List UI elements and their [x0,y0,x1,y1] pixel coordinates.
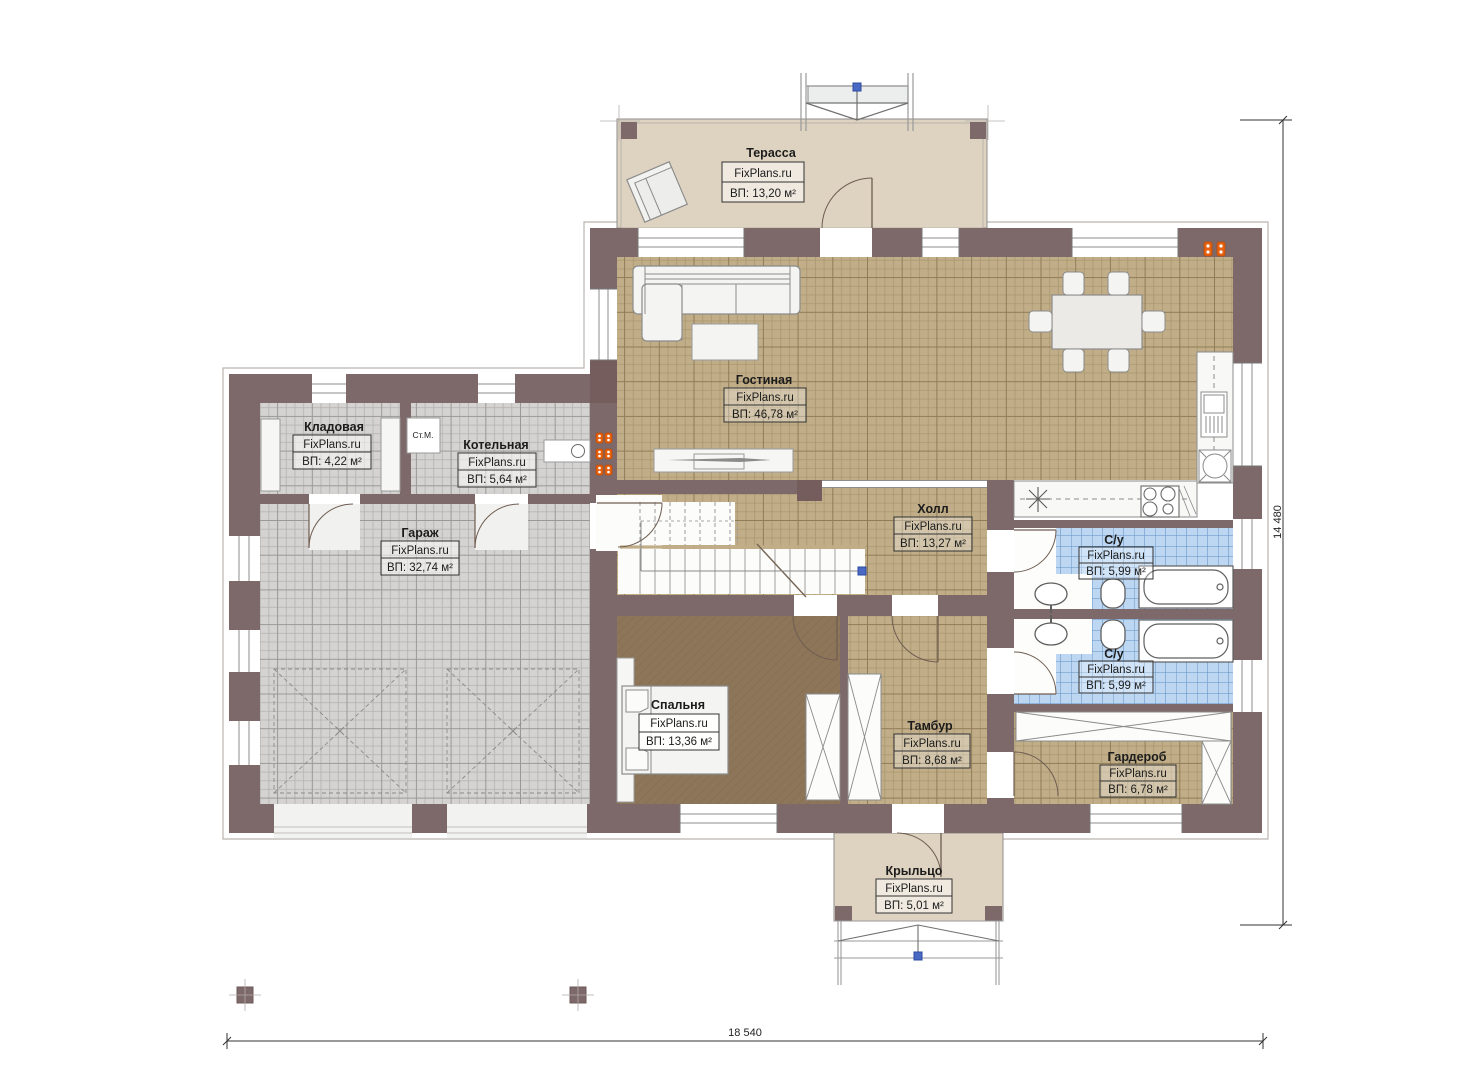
svg-text:FixPlans.ru: FixPlans.ru [303,439,361,451]
svg-text:Холл: Холл [917,502,948,516]
svg-text:ВП: 13,36 м²: ВП: 13,36 м² [646,736,712,748]
svg-text:FixPlans.ru: FixPlans.ru [468,457,526,469]
svg-text:Гостиная: Гостиная [736,373,793,387]
svg-text:ВП: 5,99 м²: ВП: 5,99 м² [1086,566,1146,578]
svg-text:FixPlans.ru: FixPlans.ru [650,718,708,730]
svg-text:ВП: 13,20 м²: ВП: 13,20 м² [730,188,796,200]
svg-text:14 480: 14 480 [1272,505,1284,539]
svg-text:FixPlans.ru: FixPlans.ru [391,545,449,557]
svg-text:FixPlans.ru: FixPlans.ru [1087,550,1145,562]
svg-text:ВП: 5,99 м²: ВП: 5,99 м² [1086,680,1146,692]
svg-text:ВП: 5,64 м²: ВП: 5,64 м² [467,474,527,486]
svg-text:ВП: 6,78 м²: ВП: 6,78 м² [1108,784,1168,796]
svg-text:FixPlans.ru: FixPlans.ru [904,521,962,533]
svg-text:FixPlans.ru: FixPlans.ru [1087,664,1145,676]
svg-text:ВП: 32,74 м²: ВП: 32,74 м² [387,562,453,574]
svg-text:ВП: 4,22 м²: ВП: 4,22 м² [302,456,362,468]
svg-text:ВП: 13,27 м²: ВП: 13,27 м² [900,538,966,550]
svg-text:FixPlans.ru: FixPlans.ru [903,738,961,750]
svg-text:Терасса: Терасса [746,146,797,160]
svg-text:Гараж: Гараж [401,526,438,540]
svg-text:Тамбур: Тамбур [907,719,953,733]
svg-text:ВП: 5,01 м²: ВП: 5,01 м² [884,900,944,912]
svg-text:ВП: 8,68 м²: ВП: 8,68 м² [902,755,962,767]
svg-text:18 540: 18 540 [728,1027,762,1039]
svg-text:ВП: 46,78 м²: ВП: 46,78 м² [732,409,798,421]
svg-text:С/у: С/у [1104,647,1124,661]
svg-text:Ст.М.: Ст.М. [413,430,434,440]
svg-text:Котельная: Котельная [463,438,528,452]
svg-text:Крыльцо: Крыльцо [886,864,943,878]
svg-text:Спальня: Спальня [651,698,705,712]
svg-text:FixPlans.ru: FixPlans.ru [1109,768,1167,780]
svg-text:Кладовая: Кладовая [304,420,364,434]
svg-text:С/у: С/у [1104,533,1124,547]
svg-text:FixPlans.ru: FixPlans.ru [885,883,943,895]
svg-text:FixPlans.ru: FixPlans.ru [734,168,792,180]
svg-text:FixPlans.ru: FixPlans.ru [736,392,794,404]
svg-text:Гардероб: Гардероб [1107,750,1166,764]
